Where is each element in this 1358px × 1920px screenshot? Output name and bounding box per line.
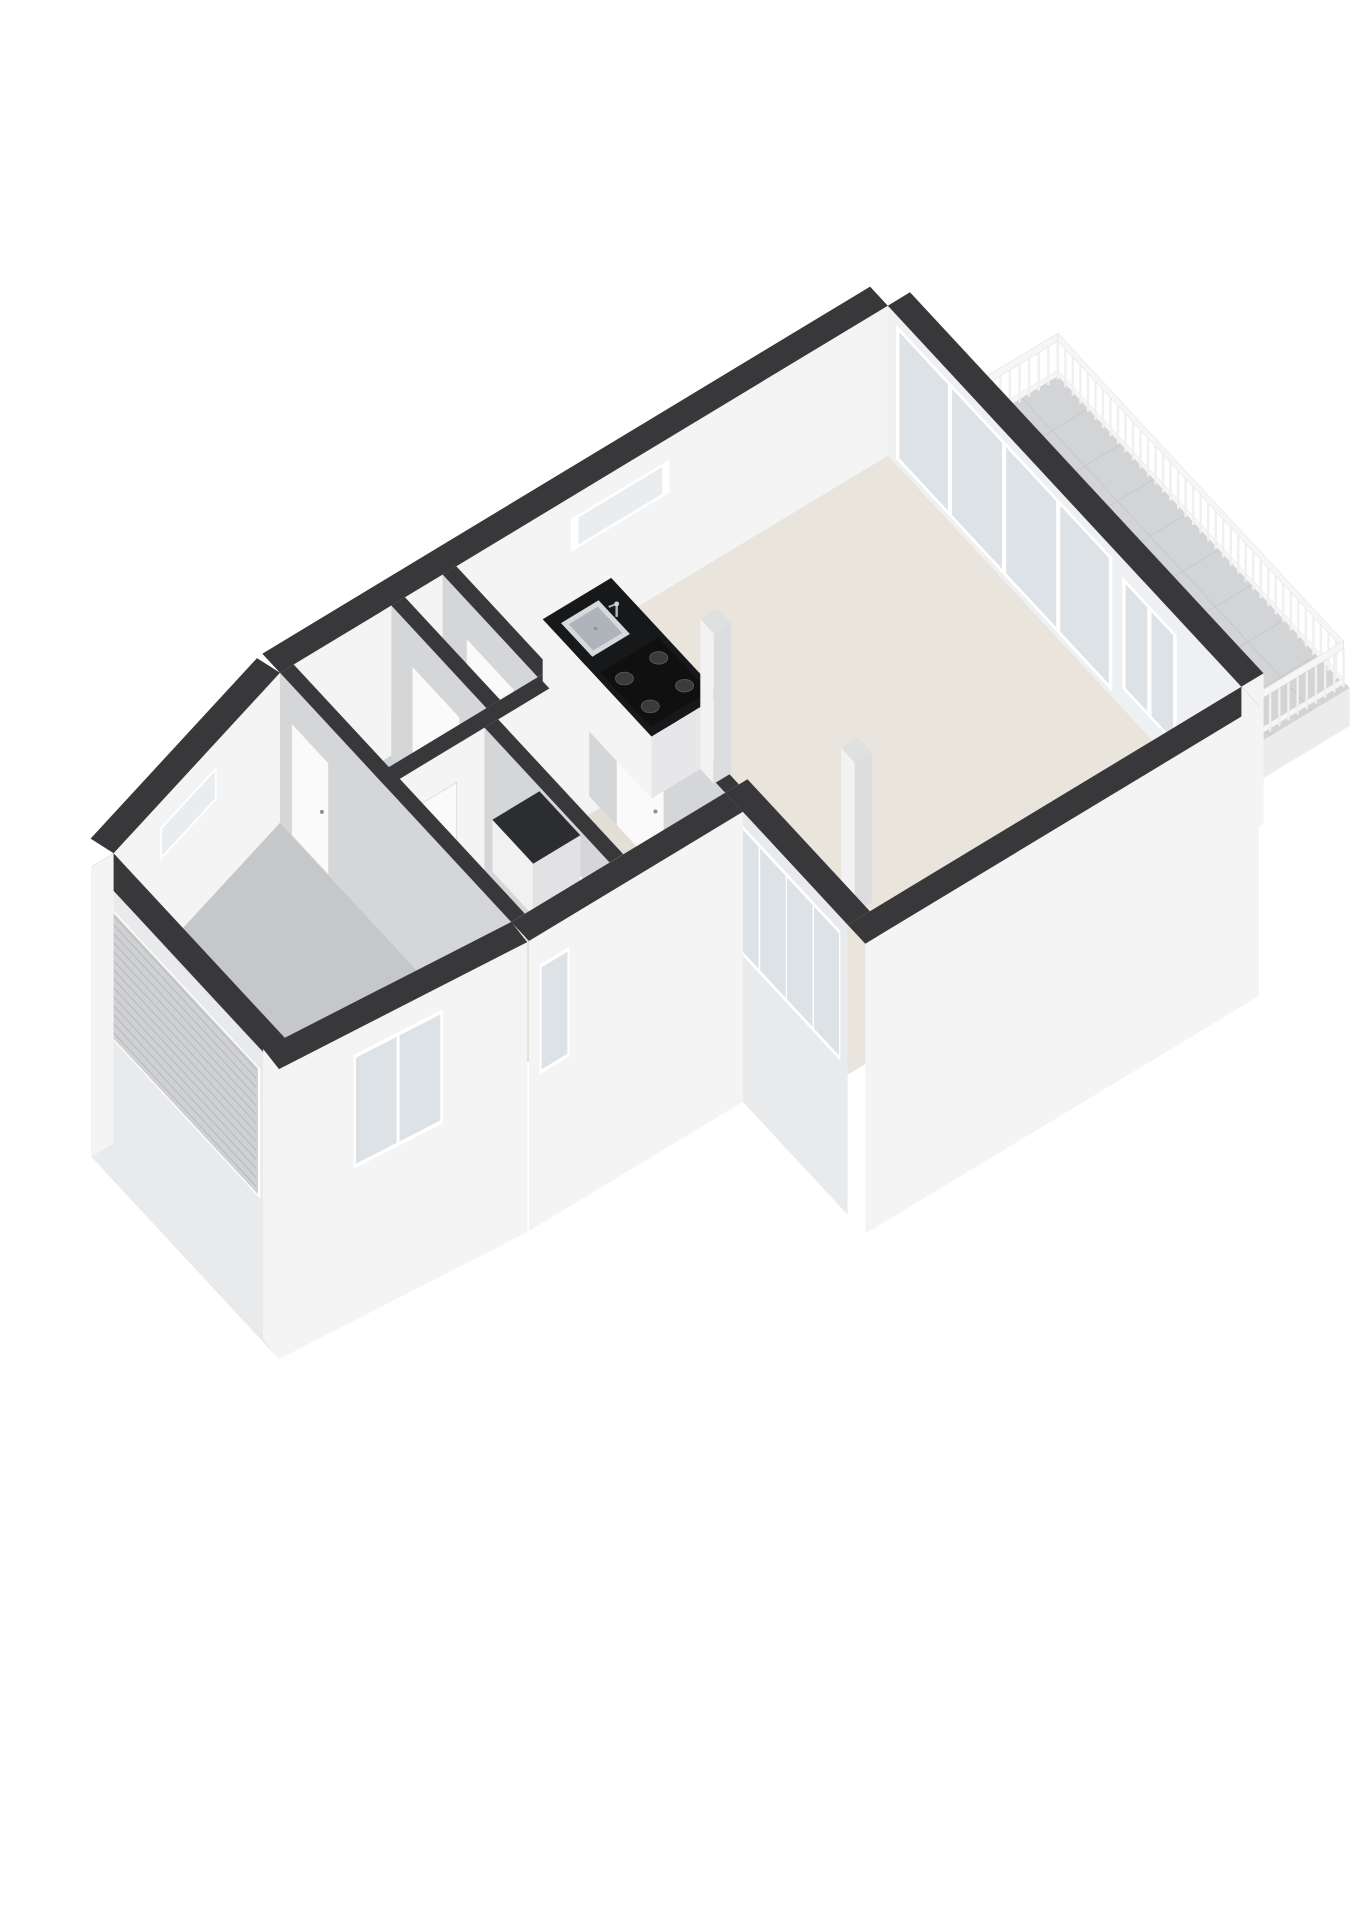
floorplan-3d-viewport [0, 0, 1358, 1920]
structural-column-a [700, 609, 731, 784]
floorplan-3d-render [0, 0, 1358, 1920]
window [540, 947, 570, 1075]
